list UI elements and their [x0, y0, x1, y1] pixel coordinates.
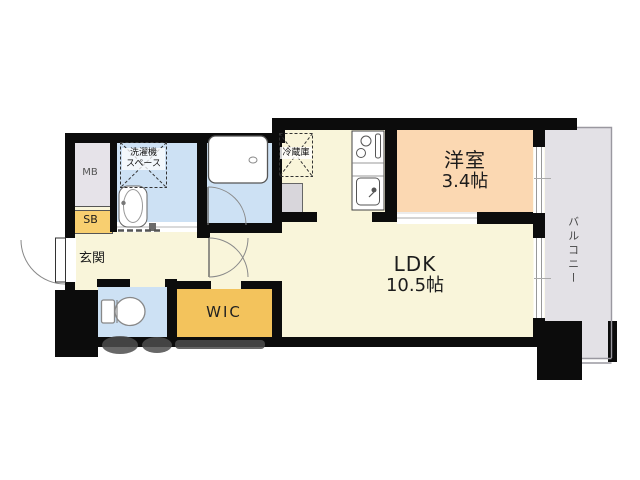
ldk-name: LDK	[330, 253, 500, 276]
balcony-label: バルコニー	[566, 206, 579, 296]
western-room-label: 洋室 3.4帖	[400, 149, 530, 193]
laundry-space-label: 洗濯機 スペース	[118, 148, 169, 170]
window-western	[534, 147, 552, 213]
toilet-icon	[102, 298, 146, 326]
bathroom-door	[208, 187, 246, 225]
shoe-box-label: SB	[70, 214, 111, 227]
wic-label: WIC	[176, 304, 272, 321]
bottom-wall-artifacts	[102, 336, 265, 354]
western-room-size: 3.4帖	[400, 172, 530, 193]
fridge-label: 冷蔵庫	[279, 148, 313, 159]
floorplan: LDK 10.5帖 洋室 3.4帖 バルコニー WIC 玄関 SB MB 洗濯機…	[0, 0, 640, 480]
washbasin-icon	[119, 186, 147, 227]
fixtures-overlay	[0, 0, 640, 480]
hall-door	[209, 238, 248, 277]
ldk-label: LDK 10.5帖	[330, 253, 500, 297]
bathtub-icon	[209, 136, 268, 183]
laundry-space-line1: 洗濯機	[118, 148, 169, 159]
western-sliding-door	[397, 212, 477, 224]
western-room-name: 洋室	[400, 149, 530, 172]
kitchen-sink-icon	[357, 178, 380, 205]
entrance-label: 玄関	[63, 252, 121, 267]
kitchen-unit	[352, 131, 384, 210]
meter-box-label: MB	[71, 167, 109, 179]
laundry-space-line2: スペース	[118, 159, 169, 170]
ldk-size: 10.5帖	[330, 276, 500, 297]
window-ldk	[534, 238, 552, 318]
balcony-outline	[577, 128, 612, 364]
